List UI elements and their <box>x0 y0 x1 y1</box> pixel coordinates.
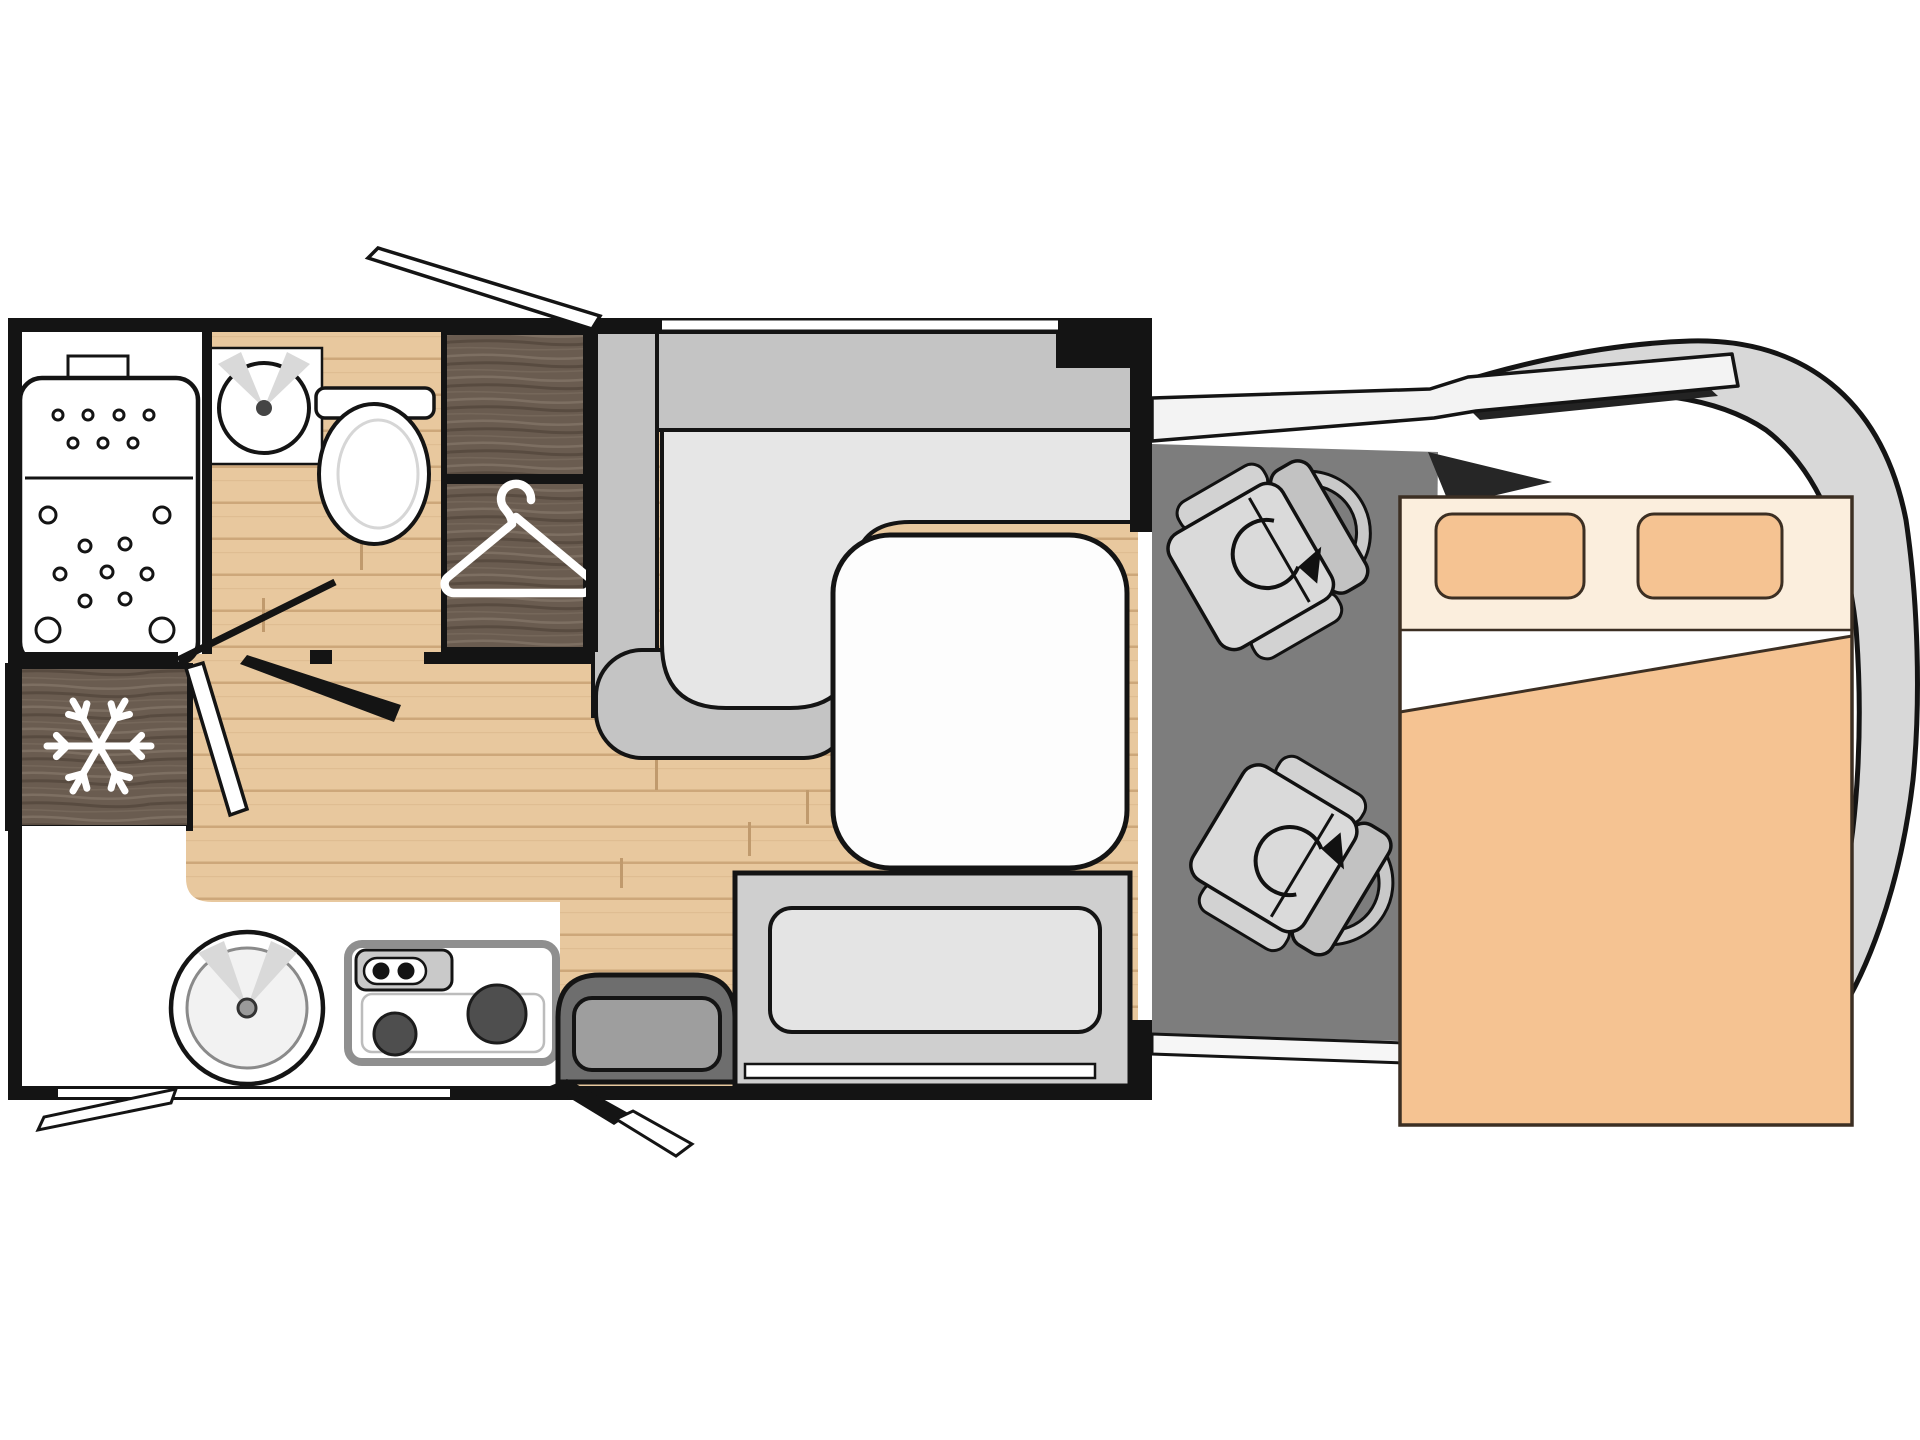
floorplan-svg <box>0 0 1920 1440</box>
bed-duvet <box>1400 636 1852 1125</box>
toilet-bowl <box>319 404 429 544</box>
double-bed <box>1400 497 1852 1125</box>
entry-door-white <box>616 1111 692 1156</box>
wall-left <box>8 318 22 1100</box>
hob-knob-2 <box>398 963 415 980</box>
entry-step <box>558 975 735 1082</box>
dinette-table <box>833 535 1127 868</box>
step-inner <box>574 998 720 1070</box>
wardrobe-wall <box>586 332 598 652</box>
habitation-box <box>8 248 1152 1156</box>
wardrobe-body <box>444 332 586 650</box>
burner-small <box>374 1013 416 1055</box>
floorplan-canvas <box>0 0 1920 1440</box>
shower-partition <box>202 332 212 654</box>
window-top <box>662 321 1058 330</box>
awning-window-marker <box>368 248 600 329</box>
hob-knob-1 <box>373 963 390 980</box>
bench-window-sliver <box>745 1064 1095 1078</box>
window-bottom-left <box>58 1089 450 1097</box>
bathroom-wall-left <box>8 652 178 664</box>
wardrobe <box>444 332 591 650</box>
bathroom-wall-right <box>424 652 594 664</box>
bathroom-wall-hinge <box>310 650 332 664</box>
side-bench <box>735 873 1130 1086</box>
burner-large <box>468 985 526 1043</box>
wall-corner-top-right <box>1056 332 1152 368</box>
sink-drain <box>238 999 256 1017</box>
bed-pillow-right <box>1638 514 1782 598</box>
wall-right-bottom <box>1130 1020 1152 1100</box>
bench-cushion <box>770 908 1100 1032</box>
basin-drain <box>256 400 272 416</box>
bed-pillow-left <box>1436 514 1584 598</box>
fridge <box>8 666 190 828</box>
